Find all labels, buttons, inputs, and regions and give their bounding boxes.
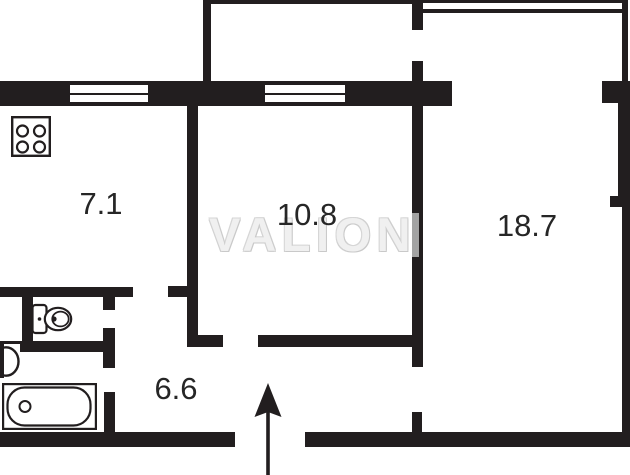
wall-right-pier-top xyxy=(602,81,630,103)
room-label-room-big: 18.7 xyxy=(481,209,573,242)
wall-right-thin-upper xyxy=(622,3,628,83)
bathtub-icon xyxy=(2,383,97,430)
wall-right-bump xyxy=(610,196,630,207)
wall-loggia-line-outer xyxy=(421,0,628,3)
stove-icon xyxy=(11,116,51,157)
wall-balcony-top xyxy=(203,0,421,4)
window-divider xyxy=(70,93,148,95)
wall-kitchen-door-stub xyxy=(168,286,198,297)
wall-bottom-right xyxy=(305,432,630,447)
entrance-arrow-icon xyxy=(252,382,284,475)
wall-bottom-left xyxy=(0,432,235,447)
toilet-icon xyxy=(30,302,74,336)
wall-right-lower xyxy=(622,207,630,447)
wall-right-mid xyxy=(618,103,630,198)
room-label-room-mid: 10.8 xyxy=(261,198,353,231)
washbasin-icon xyxy=(0,344,22,380)
wall-hall-top-foot xyxy=(187,335,223,347)
wall-hall-top xyxy=(258,335,412,347)
room-label-hallway: 6.6 xyxy=(130,372,222,405)
window-divider xyxy=(265,93,345,95)
wall-balcony-left xyxy=(203,0,211,82)
wall-bath-right-lower-stub xyxy=(104,392,115,433)
wall-balcony-right-upper xyxy=(412,0,423,30)
wall-wc-bath-right xyxy=(103,328,115,368)
window-kitchen xyxy=(68,83,150,104)
wall-wc-right-upper-stub xyxy=(103,296,115,310)
room-label-kitchen: 7.1 xyxy=(55,187,147,220)
wall-loggia-line-inner xyxy=(421,9,626,13)
wall-kitchen-divider xyxy=(187,105,198,347)
floor-plan: VALION 7.1 10.8 18.7 6.6 xyxy=(0,0,630,475)
window-room xyxy=(263,83,347,104)
